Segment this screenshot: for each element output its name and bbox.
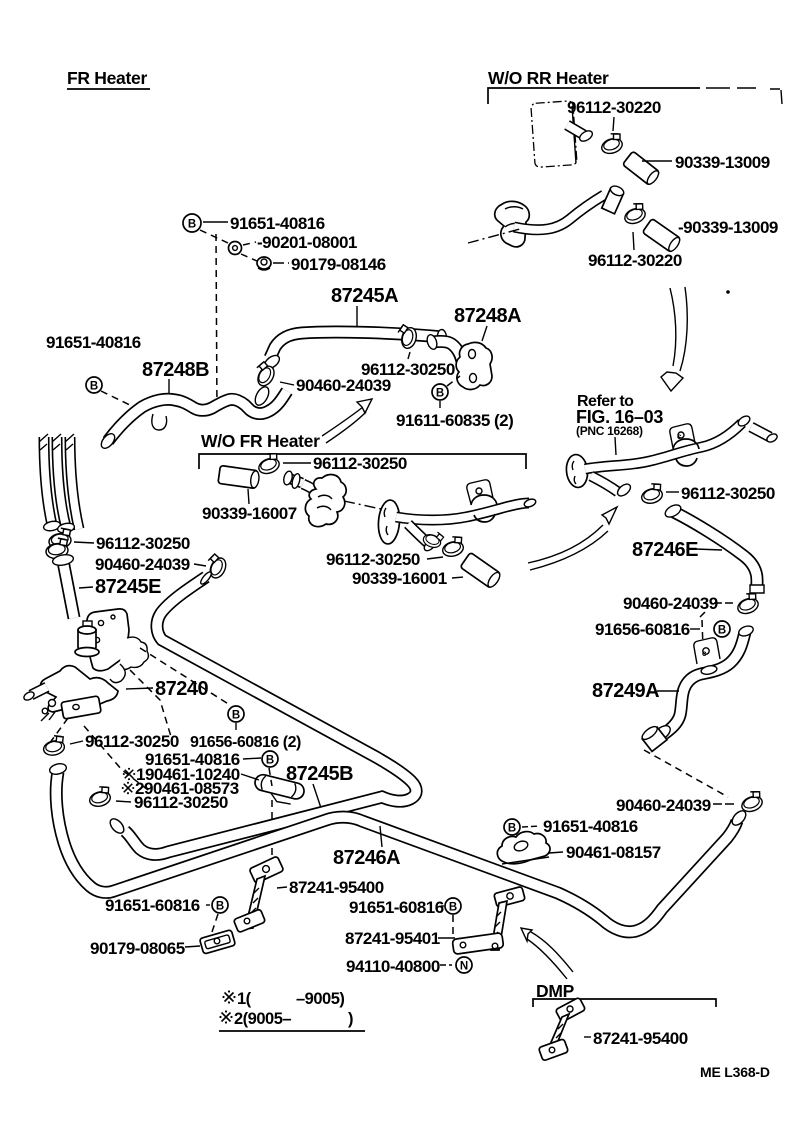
svg-text:W/O FR Heater: W/O FR Heater — [201, 431, 320, 451]
svg-text:96112-30250: 96112-30250 — [326, 550, 420, 569]
svg-text:B: B — [232, 710, 240, 722]
svg-text:87240: 87240 — [155, 678, 208, 700]
svg-text:90460-24039: 90460-24039 — [616, 796, 711, 815]
svg-text:90460-24039: 90460-24039 — [95, 555, 190, 574]
svg-text:(PNC 16268): (PNC 16268) — [576, 424, 643, 438]
svg-text:B: B — [90, 381, 98, 393]
svg-text:87245A: 87245A — [331, 285, 398, 307]
svg-text:2(9005–: 2(9005– — [234, 1010, 291, 1028]
svg-text:87249A: 87249A — [592, 680, 659, 702]
svg-text:–9005): –9005) — [296, 990, 344, 1008]
svg-text:96112-30220: 96112-30220 — [567, 98, 661, 117]
svg-text:87241-95401: 87241-95401 — [345, 929, 440, 948]
svg-text:96112-30220: 96112-30220 — [588, 251, 682, 270]
svg-text:90339-16001: 90339-16001 — [352, 569, 447, 588]
svg-text:87241-95400: 87241-95400 — [289, 878, 384, 897]
svg-text:87246E: 87246E — [632, 539, 698, 561]
svg-text:91656-60816 (2): 91656-60816 (2) — [190, 734, 301, 751]
svg-text:87241-95400: 87241-95400 — [593, 1029, 688, 1048]
svg-text:91656-60816: 91656-60816 — [595, 620, 690, 639]
svg-text:87246A: 87246A — [333, 847, 400, 869]
svg-text:96112-30250: 96112-30250 — [313, 454, 407, 473]
svg-text:W/O RR Heater: W/O RR Heater — [488, 68, 609, 88]
svg-text:94110-40800: 94110-40800 — [346, 957, 440, 976]
svg-text:91651-40816: 91651-40816 — [543, 817, 638, 836]
svg-text:87245B: 87245B — [286, 763, 353, 785]
svg-text:96112-30250: 96112-30250 — [96, 534, 190, 553]
svg-text:96112-30250: 96112-30250 — [85, 732, 179, 751]
svg-text:DMP: DMP — [536, 981, 575, 1001]
svg-text:91651-60816: 91651-60816 — [349, 898, 444, 917]
svg-text:90460-24039: 90460-24039 — [296, 376, 391, 395]
svg-text:B: B — [449, 902, 457, 914]
svg-text:90179-08146: 90179-08146 — [291, 255, 386, 274]
svg-text:B: B — [508, 823, 516, 835]
svg-text:-90201-08001: -90201-08001 — [257, 233, 357, 252]
svg-text:91651-40816: 91651-40816 — [46, 333, 141, 352]
svg-text:-90339-13009: -90339-13009 — [678, 218, 778, 237]
svg-text:90339-16007: 90339-16007 — [202, 504, 297, 523]
svg-text:B: B — [188, 219, 196, 231]
svg-text:96112-30250: 96112-30250 — [134, 793, 228, 812]
svg-text:87248A: 87248A — [454, 305, 521, 327]
svg-text:1(: 1( — [237, 990, 252, 1008]
svg-text:90460-24039: 90460-24039 — [623, 594, 718, 613]
svg-text:91651-40816: 91651-40816 — [230, 214, 325, 233]
svg-text:B: B — [216, 901, 224, 913]
svg-text:N: N — [460, 961, 468, 973]
svg-text:90461-08157: 90461-08157 — [566, 843, 661, 862]
svg-text:91611-60835 (2): 91611-60835 (2) — [396, 411, 513, 430]
svg-text:87245E: 87245E — [95, 576, 161, 598]
svg-text:ME L368-D: ME L368-D — [700, 1064, 770, 1080]
svg-text:96112-30250: 96112-30250 — [681, 484, 775, 503]
svg-text:): ) — [348, 1010, 353, 1028]
svg-text:B: B — [266, 755, 274, 767]
svg-text:B: B — [718, 625, 726, 637]
svg-text:FR Heater: FR Heater — [67, 68, 147, 88]
svg-text:90179-08065: 90179-08065 — [90, 939, 185, 958]
svg-text:90339-13009: 90339-13009 — [675, 153, 770, 172]
svg-text:B: B — [436, 388, 444, 400]
svg-text:91651-60816: 91651-60816 — [105, 896, 200, 915]
svg-text:c: c — [702, 649, 707, 658]
svg-text:87248B: 87248B — [142, 359, 209, 381]
